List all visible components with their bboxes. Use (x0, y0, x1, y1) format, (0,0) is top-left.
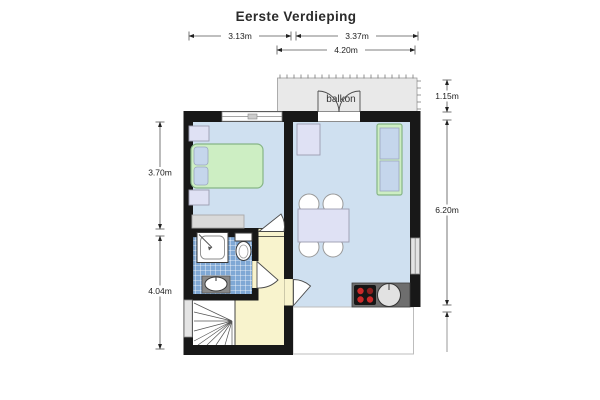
wall-top (184, 111, 421, 122)
pillow-bottom (194, 167, 208, 185)
wall-bathroom-bottom (190, 294, 259, 301)
dim-top-right: 3.37m (296, 31, 418, 42)
dim-label-337: 3.37m (345, 31, 369, 41)
dim-lower-left-height: 4.04m (142, 236, 178, 349)
nightstand-top (189, 126, 209, 141)
dim-label-620: 6.20m (435, 205, 459, 215)
wall-interior-vertical (284, 118, 293, 345)
sofa-cushion-bottom (380, 161, 399, 191)
bathroom-sink-icon (202, 276, 230, 293)
toilet-icon (235, 233, 252, 261)
page-title: Eerste Verdieping (236, 9, 357, 24)
kitchen (352, 283, 410, 307)
dim-label-404: 4.04m (148, 286, 172, 296)
shower-icon (197, 233, 228, 263)
nightstand-bottom (189, 190, 209, 205)
pillow-top (194, 147, 208, 165)
dim-bedroom-height: 3.70m (142, 122, 178, 229)
dresser (192, 215, 244, 228)
void-area (293, 307, 414, 354)
dim-right-height: 6.20m (429, 120, 465, 305)
dim-label-420: 4.20m (334, 45, 358, 55)
dim-label-313: 3.13m (228, 31, 252, 41)
dining-table (298, 209, 349, 242)
wall-bottom (184, 345, 294, 355)
sofa-cushion-top (380, 128, 399, 159)
floor-plan-canvas: Eerste Verdieping balkon (0, 0, 600, 400)
dim-balcony-depth: 1.15m (429, 80, 465, 112)
bedroom-window-handle (248, 114, 257, 119)
living-door-opening (284, 279, 293, 306)
dim-top-left: 3.13m (189, 31, 291, 42)
wardrobe (297, 124, 320, 155)
floor-plan-page: Eerste Verdieping balkon (0, 0, 600, 400)
dim-label-370: 3.70m (148, 168, 172, 178)
balcony-door-opening (318, 112, 360, 122)
dim-balcony-width: 4.20m (277, 45, 415, 56)
dim-label-115: 1.15m (435, 91, 459, 101)
stove-icon (354, 285, 376, 305)
wall-right (410, 111, 421, 307)
dim-right-lower-segment (443, 312, 452, 352)
stairwell-window-icon (184, 300, 192, 337)
